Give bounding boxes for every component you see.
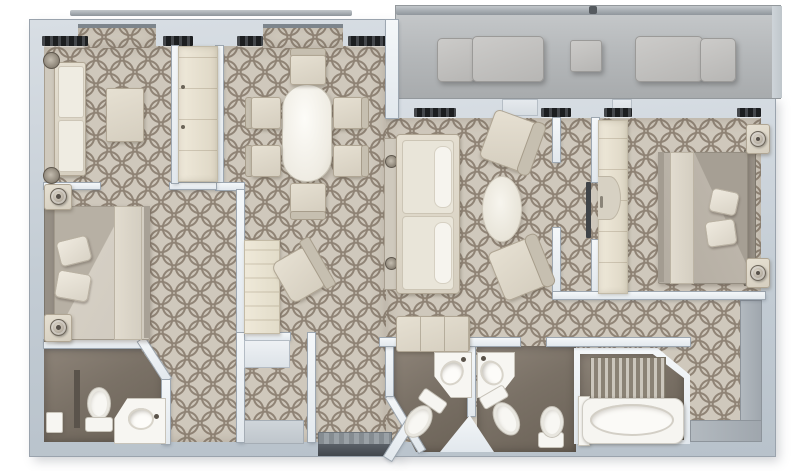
- outdoor-sofa-right: [635, 36, 703, 82]
- balcony-railing-post: [589, 6, 597, 14]
- floor-plan-canvas: [0, 0, 800, 471]
- bed-right-foot: [658, 152, 664, 282]
- curtain-sill-7: [604, 108, 632, 117]
- wall-jog: [216, 183, 244, 190]
- sitting-sofa-arm-top: [43, 52, 60, 69]
- balcony-railing: [396, 6, 780, 15]
- exterior-ledge-rail: [70, 10, 352, 16]
- curtain-sill-6: [541, 108, 571, 117]
- dining-chair-r2: [333, 145, 363, 177]
- dining-chair-r1-back: [361, 97, 369, 129]
- bed-left-foot: [144, 206, 150, 338]
- entry-threshold: [318, 444, 390, 456]
- bath2-faucet: [481, 356, 486, 361]
- bed-left-runner: [114, 206, 142, 340]
- wall-entry-bath-vertical: [386, 346, 393, 396]
- dining-chair-bottom-back: [290, 211, 326, 220]
- wall-vestibule-north: [237, 333, 290, 340]
- bathtub-inner: [590, 404, 674, 436]
- wall-bedroomright-south: [553, 292, 765, 299]
- wall-bedroomleft-corridor: [237, 190, 244, 333]
- bidet-bowl: [540, 406, 564, 438]
- outdoor-side-table: [570, 40, 602, 72]
- left-bath-partition: [74, 370, 80, 428]
- lamp-right-top: [750, 131, 766, 147]
- wall-living-hallway-upper: [553, 118, 560, 162]
- living-sofa-bolster-1: [434, 146, 452, 208]
- curtain-sill-8: [737, 108, 761, 117]
- bed-right-pillow-2: [704, 218, 737, 248]
- dining-chair-l1: [251, 97, 281, 129]
- curtain-sill-2: [163, 36, 193, 46]
- sitting-sofa-arm-bottom: [43, 167, 60, 184]
- lamp-left-top: [50, 188, 67, 205]
- living-sofa-bolster-2: [434, 222, 452, 284]
- vestibule-shelf-bottom: [244, 420, 304, 444]
- curtain-sill-3: [237, 36, 263, 46]
- wall-vestibule-east: [308, 333, 315, 442]
- toilet-left-bowl: [87, 387, 111, 420]
- sitting-sofa-cushion-2: [58, 120, 84, 172]
- wardrobe-right-handle: [600, 196, 603, 208]
- outdoor-sofa-arm-left: [437, 38, 475, 82]
- wardrobe-left: [178, 46, 218, 182]
- dining-chair-r2-back: [361, 145, 369, 177]
- dining-table: [282, 84, 332, 182]
- dining-chair-r1: [333, 97, 363, 129]
- coffee-table: [106, 88, 144, 142]
- window-glass-1: [78, 24, 156, 28]
- wall-vestibule-west: [237, 333, 244, 442]
- lamp-left-bottom: [50, 319, 67, 336]
- dining-chair-top: [290, 55, 326, 85]
- sliding-door-right-bedroom: [586, 182, 591, 238]
- lamp-right-bottom: [750, 265, 766, 281]
- left-bath-scale: [46, 412, 63, 433]
- outdoor-sofa-left: [472, 36, 544, 82]
- oval-pouf: [482, 176, 522, 242]
- shower-slatted-screen: [590, 357, 666, 399]
- bed-right-runner: [670, 152, 694, 284]
- bench: [396, 316, 470, 352]
- left-bath-basin: [128, 408, 154, 430]
- wall-sitting-bedroom-stub-b: [170, 183, 216, 189]
- curtain-sill-1: [42, 36, 88, 46]
- balcony-right-edge: [772, 6, 782, 98]
- wall-dining-balcony: [386, 20, 398, 118]
- vestibule-shelf-top: [244, 340, 290, 368]
- dining-chair-l2: [251, 145, 281, 177]
- toilet-left-tank: [85, 417, 113, 432]
- wall-baths-north-b: [547, 338, 690, 346]
- dining-chair-bottom: [290, 183, 326, 213]
- dressing-walkway-horizontal: [690, 420, 762, 442]
- left-bath-faucet: [154, 414, 159, 419]
- sitting-sofa-cushion-1: [58, 66, 84, 118]
- bed-left-pillow-2: [54, 269, 92, 302]
- wardrobe-left-knob-1: [181, 85, 185, 89]
- curtain-sill-5: [414, 108, 456, 117]
- window-glass-2: [263, 24, 343, 28]
- outdoor-sofa-arm-right: [700, 38, 736, 82]
- wardrobe-left-knob-2: [181, 125, 185, 129]
- bath1-faucet: [461, 357, 466, 362]
